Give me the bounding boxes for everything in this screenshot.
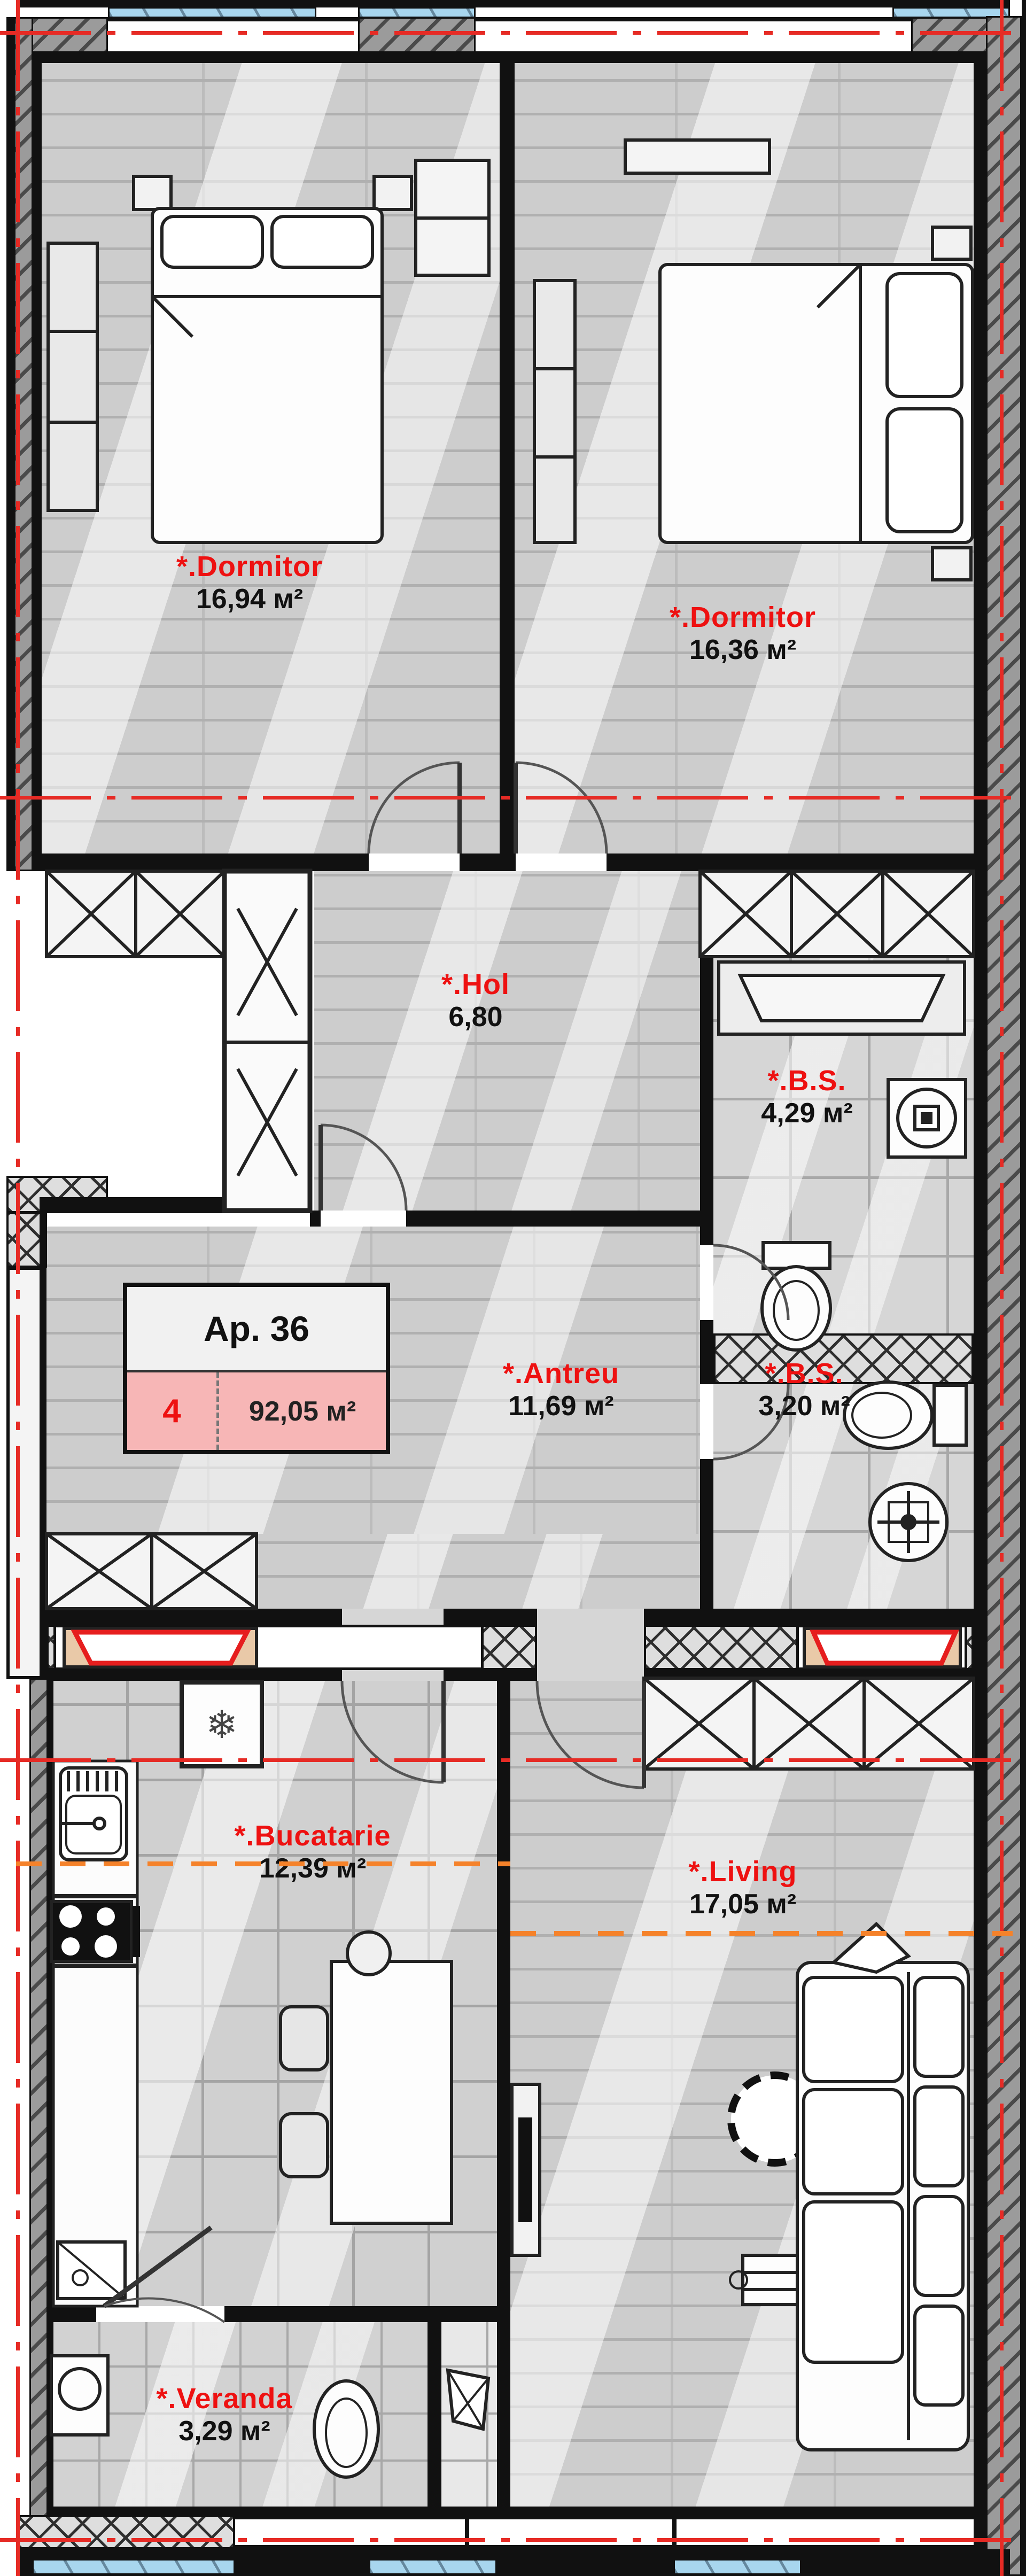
wall-under-bedrooms-c [607,854,986,871]
floor-plan-canvas: ❄ [0,0,1026,2576]
top-window-band-left [108,17,358,57]
wall-between-bathrooms [713,1333,974,1384]
door-gap-living [537,1609,644,1681]
bottom-glazing-right [673,2559,802,2575]
wall-kitchen-living [497,1681,510,2507]
apartment-right-wall [974,51,986,2549]
bottom-pier-left [16,2515,235,2549]
left-hatch-wall-top [14,17,33,871]
wall-hol-antreu-left [46,1197,310,1213]
bottom-window-mullion-1 [465,2515,469,2549]
wall-hol-antreu-b [406,1211,700,1227]
band-bottom-bar-a [46,1670,342,1681]
band-top-bar-b [444,1609,537,1625]
wall-hol-bs1-a [700,957,713,1245]
apartment-number-badge: 4 [127,1372,219,1450]
right-hatch-wall [986,16,1022,2576]
closet-x-row-under-bedroom1 [46,871,224,957]
room-dormitor-2 [515,63,974,854]
bottom-glazing-left [32,2559,235,2575]
room-bs-1 [713,957,974,1333]
top-pier-mid [358,17,476,57]
right-outer-edge [1022,0,1026,2576]
wall-hol-antreu-a [310,1211,321,1227]
closet-x-row-antreu [46,1534,256,1609]
room-veranda [53,2322,428,2507]
wall-antreu-bs2 [700,1459,713,1609]
wall-kitchen-veranda-a [53,2306,96,2322]
top-outer-wall [16,0,1010,7]
bottom-glazing-mid [369,2559,497,2575]
left-outer-wall-top [6,17,14,871]
wall-hol-bs1-b [700,1320,713,1384]
band-bottom-bar-c [644,1670,974,1681]
bedroom1-left-wall [33,51,42,871]
bottom-inner-wall [46,2507,974,2515]
kitchen-left-wall [46,1678,53,2549]
top-window-glazing-left [108,7,316,18]
room-dormitor-1 [42,63,500,854]
top-window-band-right [476,17,911,57]
room-hol [314,871,700,1211]
apartment-title: Ap. 36 [127,1287,386,1370]
wall-veranda-strip [428,2322,441,2507]
top-window-glazing-mid [358,7,476,18]
apartment-card[interactable]: Ap. 36 4 92,05 м² [123,1283,390,1454]
radiator-niche-left [53,1625,484,1670]
apartment-total-area: 92,05 м² [219,1372,386,1450]
band-bottom-bar-b [444,1670,537,1681]
wall-kitchen-veranda-b [224,2306,497,2322]
band-top-bar-c [644,1609,974,1625]
room-veranda-strip [441,2322,497,2507]
wall-under-bedrooms-a [33,854,369,871]
hall-wardrobe-column [224,871,310,1211]
room-antreu-lower [256,1534,700,1609]
bottom-window-mullion-2 [672,2515,677,2549]
closet-x-row-under-bedroom2 [700,871,974,957]
room-bs-2 [713,1384,974,1609]
antreu-left-wall [40,1197,46,1679]
room-bucatarie [53,1681,497,2306]
wall-under-bedrooms-b [460,854,516,871]
band-top-bar-a [46,1609,342,1625]
room-living [510,1681,974,2507]
bottom-window-band [235,2515,974,2549]
bedroom-divider-wall [500,51,515,871]
radiator-niche-right [796,1625,967,1670]
